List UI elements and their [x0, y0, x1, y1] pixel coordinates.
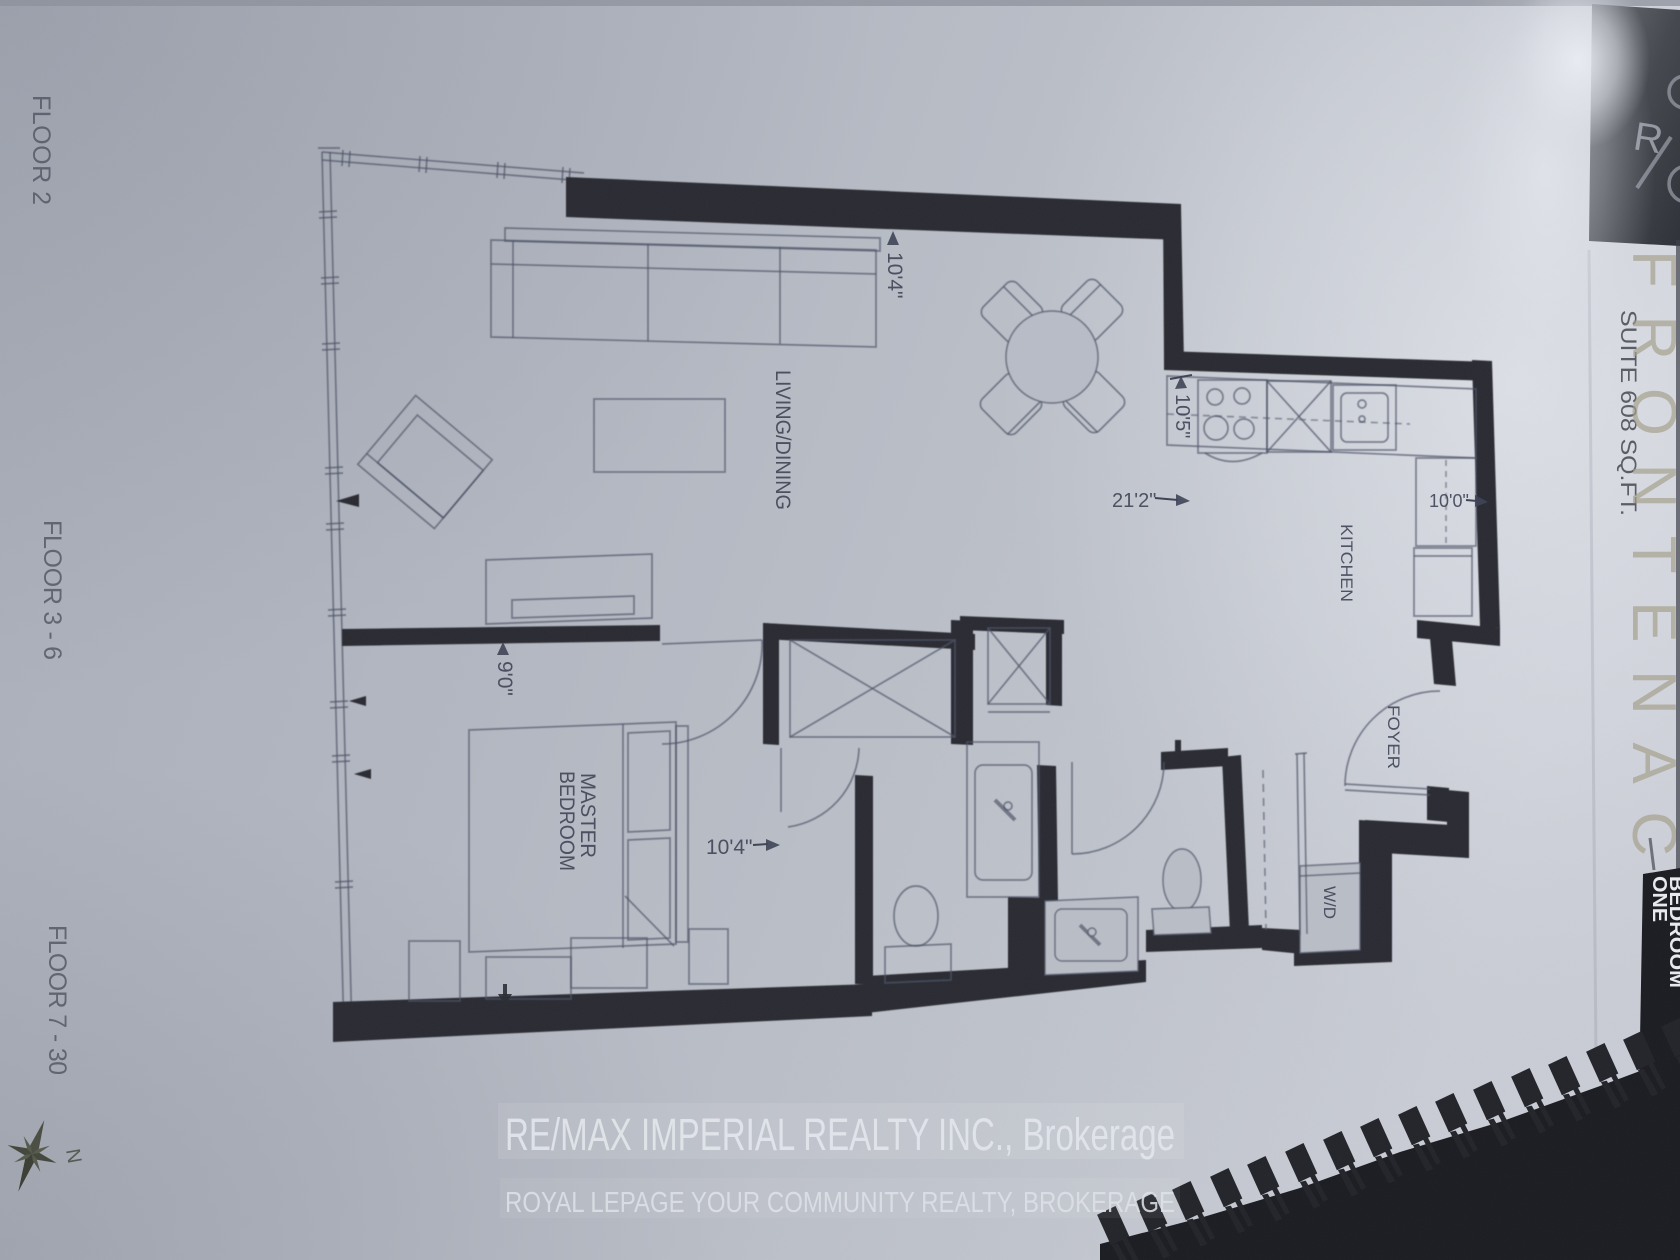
- svg-text:RE/MAX IMPERIAL REALTY INC., B: RE/MAX IMPERIAL REALTY INC., Brokerage: [505, 1109, 1175, 1160]
- svg-text:ROYAL LEPAGE YOUR COMMUNITY RE: ROYAL LEPAGE YOUR COMMUNITY REALTY, BROK…: [505, 1187, 1175, 1219]
